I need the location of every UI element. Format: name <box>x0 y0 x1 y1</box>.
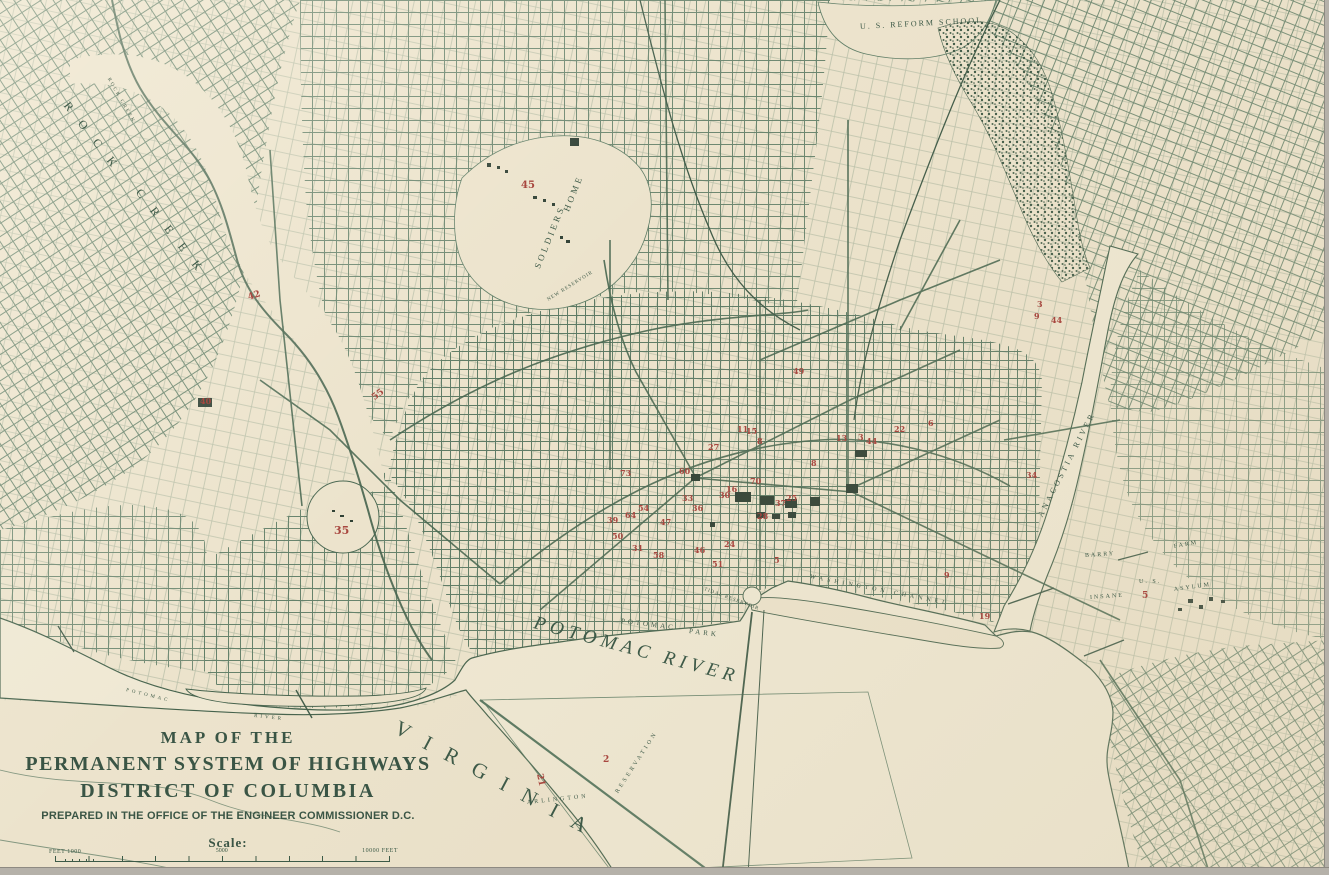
scale-bar-line <box>55 856 390 862</box>
scale-left-label: FEET 1000 <box>49 849 81 855</box>
scale-right-label: 10000 FEET <box>362 848 398 854</box>
scale-bar-subdivisions <box>65 859 99 862</box>
scan-edge-right <box>1324 0 1329 875</box>
tidal-basin <box>743 587 761 605</box>
title-block: MAP OF THE PERMANENT SYSTEM OF HIGHWAYS … <box>18 728 438 822</box>
title-line-3: DISTRICT OF COLUMBIA <box>18 780 438 803</box>
scale-bar: FEET 1000 5000 10000 FEET <box>55 849 390 863</box>
title-line-1: MAP OF THE <box>18 728 438 748</box>
map-page: ROCKCREEKROCK CREEKU. S. REFORM SCHOOLSO… <box>0 0 1329 875</box>
title-line-4: PREPARED IN THE OFFICE OF THE ENGINEER C… <box>18 810 438 822</box>
title-line-2: PERMANENT SYSTEM OF HIGHWAYS <box>18 753 438 776</box>
scale-mid-label: 5000 <box>216 848 228 854</box>
scan-edge-bottom <box>0 867 1329 875</box>
